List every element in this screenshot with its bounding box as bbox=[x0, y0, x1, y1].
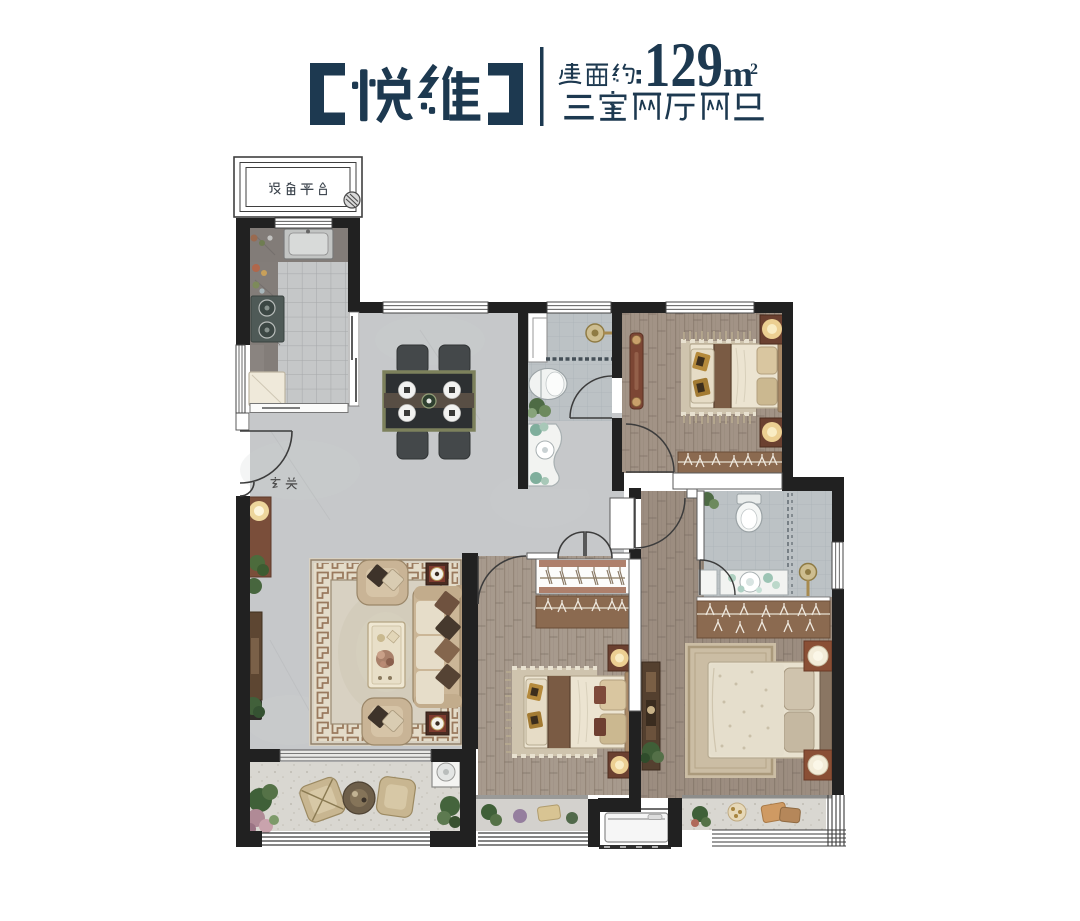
svg-text:m: m bbox=[723, 54, 753, 94]
svg-text:2: 2 bbox=[750, 61, 758, 78]
svg-text:129: 129 bbox=[644, 30, 723, 100]
